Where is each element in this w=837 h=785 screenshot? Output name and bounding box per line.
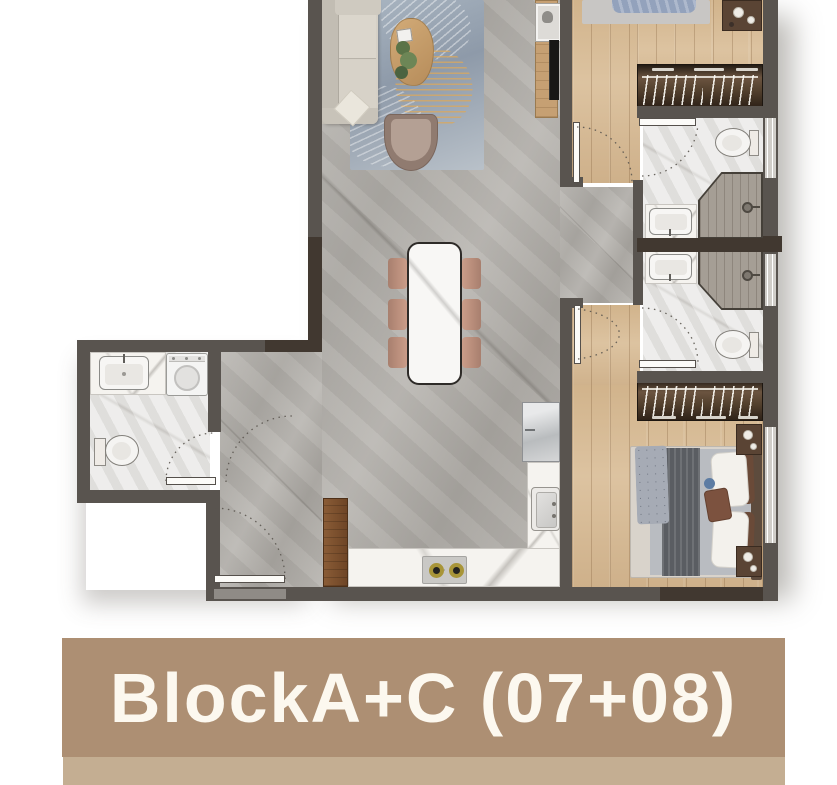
banner: BlockA+C (07+08) bbox=[62, 638, 785, 757]
plant bbox=[395, 66, 408, 79]
hall-floor bbox=[220, 352, 322, 588]
shelf-item bbox=[652, 416, 676, 419]
entry-door-leaf bbox=[214, 575, 285, 583]
window bbox=[765, 427, 776, 543]
wall bbox=[308, 237, 322, 352]
armchair-cushion bbox=[391, 119, 431, 161]
shower-floor bbox=[700, 250, 761, 308]
coffee-table bbox=[390, 18, 434, 86]
dining-chair bbox=[388, 258, 407, 289]
decor-plate bbox=[743, 430, 753, 440]
wall bbox=[265, 340, 322, 352]
toilet bbox=[715, 128, 751, 157]
basin-inner bbox=[655, 260, 687, 275]
wall bbox=[660, 587, 778, 601]
nightstand bbox=[736, 424, 762, 455]
fridge bbox=[522, 402, 560, 462]
shelf-item bbox=[652, 68, 674, 71]
knob bbox=[185, 357, 188, 360]
drum bbox=[174, 365, 200, 391]
burner bbox=[429, 563, 444, 578]
dining-chair bbox=[388, 337, 407, 368]
drain bbox=[122, 372, 126, 376]
shelf-item bbox=[738, 416, 758, 419]
shower-arm bbox=[752, 274, 760, 276]
bedroom2-floor bbox=[572, 305, 640, 390]
wall bbox=[560, 298, 572, 588]
wall bbox=[637, 106, 763, 118]
tv bbox=[549, 40, 559, 100]
toilet bbox=[715, 330, 751, 359]
wall bbox=[637, 238, 782, 252]
toilet-inner bbox=[722, 337, 742, 353]
window bbox=[765, 118, 776, 178]
shelf-item bbox=[696, 416, 726, 419]
dining-chair bbox=[462, 258, 481, 289]
door-leaf bbox=[639, 118, 696, 126]
sink-basin bbox=[536, 492, 557, 528]
faucet bbox=[123, 354, 125, 363]
window bbox=[765, 254, 776, 306]
bed1-duvet bbox=[612, 0, 696, 13]
knob bbox=[198, 357, 201, 360]
door-leaf bbox=[166, 477, 216, 485]
dining-chair bbox=[462, 299, 481, 330]
floor-plan-flyer: BlockA+C (07+08) bbox=[0, 0, 837, 785]
wash-basin bbox=[99, 356, 149, 390]
wall bbox=[77, 352, 90, 503]
bathroom-nook-floor bbox=[560, 187, 637, 303]
decor-plate bbox=[750, 565, 757, 572]
wall bbox=[308, 0, 322, 237]
hangers bbox=[710, 75, 758, 105]
burner bbox=[449, 563, 464, 578]
nightstand bbox=[736, 546, 762, 577]
shower-arm bbox=[752, 206, 760, 208]
banner-title: BlockA+C (07+08) bbox=[110, 658, 737, 738]
dining-table bbox=[407, 242, 462, 385]
basin-inner bbox=[655, 214, 687, 230]
sofa-corner bbox=[335, 0, 381, 15]
banner-strip bbox=[63, 757, 785, 785]
toilet-inner bbox=[722, 135, 742, 151]
wash-basin bbox=[649, 254, 692, 280]
kitchen-sink bbox=[531, 487, 560, 531]
decor-ball-blue bbox=[704, 478, 715, 489]
faucet bbox=[552, 502, 556, 506]
bedroom1-floor bbox=[572, 0, 640, 183]
poster-art bbox=[542, 11, 553, 23]
wardrobe bbox=[637, 379, 763, 421]
shelf-item bbox=[694, 68, 724, 71]
dining-chair bbox=[388, 299, 407, 330]
faucet bbox=[669, 229, 671, 236]
decor-plate bbox=[747, 16, 755, 24]
wash-basin bbox=[649, 208, 692, 235]
toilet bbox=[105, 435, 139, 466]
decor-ball bbox=[729, 22, 734, 27]
faucet bbox=[669, 274, 671, 281]
wall bbox=[763, 236, 782, 252]
toilet-inner bbox=[112, 442, 131, 460]
shelf-item bbox=[736, 68, 758, 71]
hangers bbox=[643, 386, 703, 416]
hangers bbox=[710, 386, 758, 416]
tall-cabinet bbox=[323, 498, 348, 587]
wall bbox=[560, 0, 572, 177]
bed-throw bbox=[635, 445, 670, 524]
poster bbox=[536, 4, 561, 41]
decor-plate bbox=[743, 552, 753, 562]
decor-plate bbox=[750, 443, 757, 450]
knob bbox=[172, 357, 175, 360]
dining-chair bbox=[462, 337, 481, 368]
washing-machine bbox=[166, 353, 208, 396]
nightstand bbox=[722, 0, 762, 31]
decor-plate bbox=[733, 7, 744, 18]
faucet bbox=[552, 514, 556, 518]
wall bbox=[77, 340, 265, 352]
door-leaf bbox=[639, 360, 696, 368]
wardrobe bbox=[637, 64, 763, 108]
entry-threshold bbox=[214, 589, 286, 599]
shower bbox=[698, 248, 763, 310]
wall bbox=[206, 490, 220, 600]
shower bbox=[698, 172, 763, 239]
hangers bbox=[643, 75, 703, 105]
door-leaf bbox=[573, 122, 580, 183]
wall bbox=[208, 352, 221, 432]
wall bbox=[77, 490, 208, 503]
wall bbox=[637, 371, 763, 383]
fridge-handle bbox=[525, 429, 535, 431]
stove bbox=[422, 556, 467, 584]
door-leaf bbox=[574, 305, 581, 364]
